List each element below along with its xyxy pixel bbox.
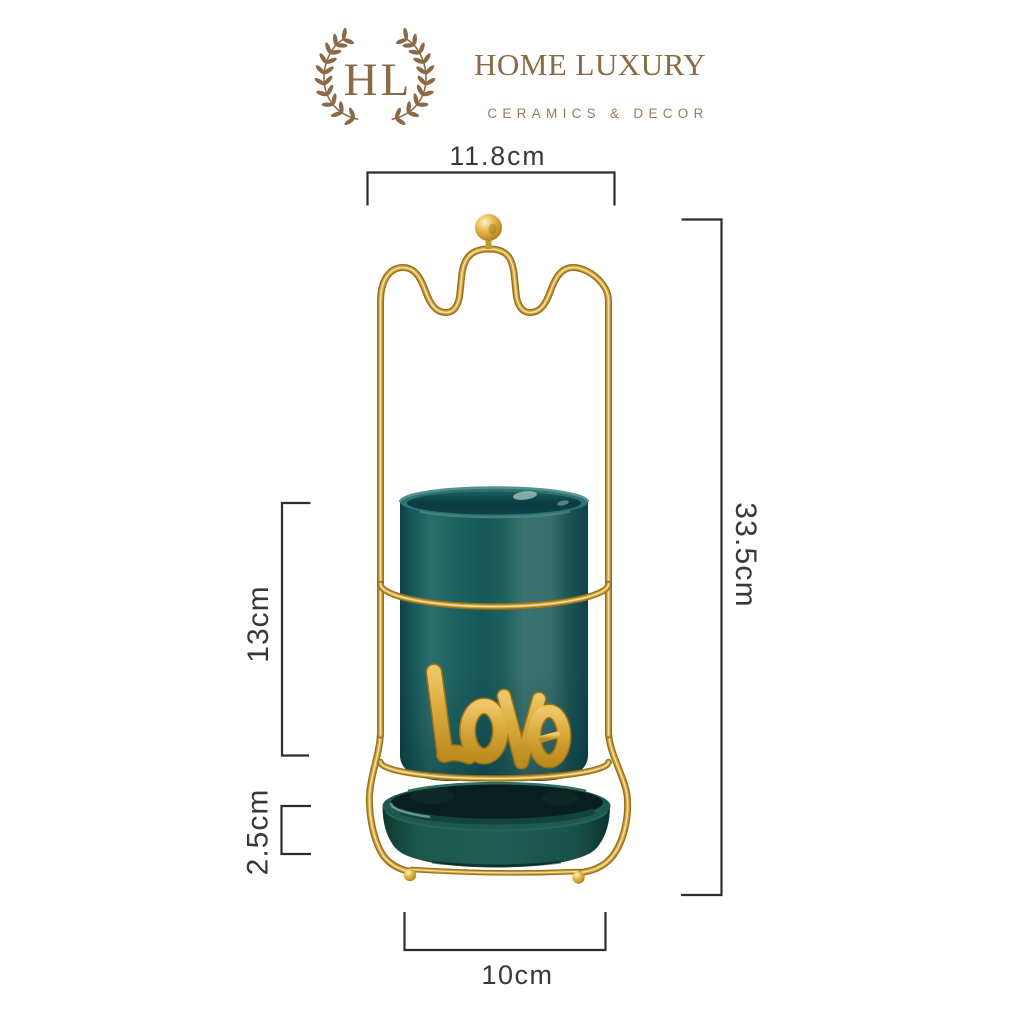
svg-text:13cm: 13cm xyxy=(242,585,275,662)
svg-text:CERAMICS & DECOR: CERAMICS & DECOR xyxy=(487,106,708,121)
svg-text:10cm: 10cm xyxy=(481,960,553,990)
svg-text:HL: HL xyxy=(344,54,413,106)
svg-text:33.5cm: 33.5cm xyxy=(729,502,762,608)
svg-text:HOME LUXURY: HOME LUXURY xyxy=(474,47,706,82)
svg-text:2.5cm: 2.5cm xyxy=(241,789,274,876)
svg-text:11.8cm: 11.8cm xyxy=(450,141,547,171)
